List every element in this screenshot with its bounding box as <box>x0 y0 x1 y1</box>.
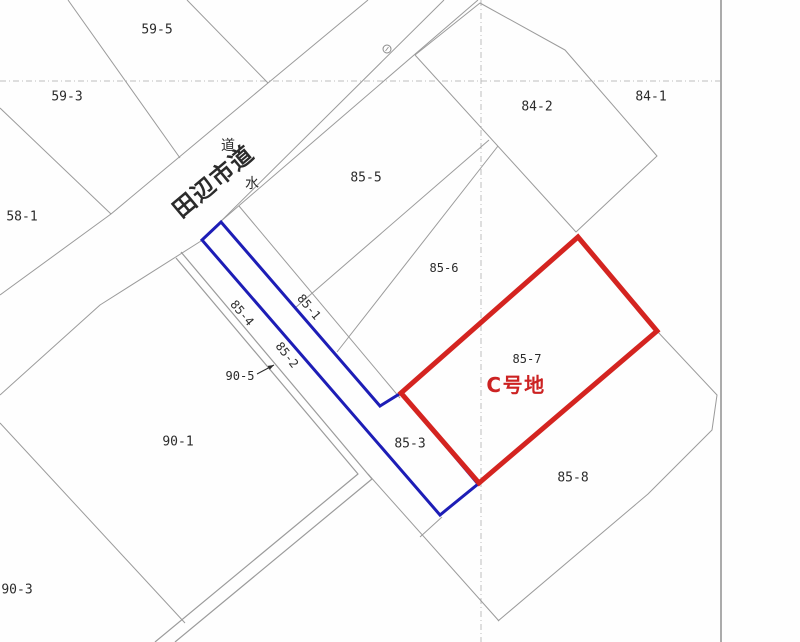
road-southeast-edge <box>0 0 444 395</box>
connector-85-3-tip <box>420 517 442 537</box>
parcel-label-84-2: 84-2 <box>521 100 552 115</box>
boundary-59-5-east <box>187 0 268 83</box>
lot-c-label: C号地 <box>486 373 545 397</box>
parcel-label-85-3: 85-3 <box>394 437 425 452</box>
channel-90-5-outer <box>175 252 372 642</box>
water-strip-label: 水 <box>245 176 259 192</box>
parcel-label-58-1: 58-1 <box>6 210 37 225</box>
parcel-label-85-5: 85-5 <box>350 171 381 186</box>
parcel-label-85-1: 85-1 <box>294 291 323 322</box>
parcel-84-2-outline <box>415 3 657 232</box>
label-90-5-arrowhead <box>268 365 274 370</box>
parcel-label-90-3: 90-3 <box>1 583 32 598</box>
parcel-label-85-7: 85-7 <box>513 352 542 366</box>
boundary-85-8-northwest <box>368 474 499 621</box>
parcel-label-85-6: 85-6 <box>430 261 459 275</box>
parcel-label-90-5: 90-5 <box>226 369 255 383</box>
cadastral-map-page: 59-559-358-184-284-185-585-685-785-885-3… <box>0 0 800 642</box>
cadastral-map-svg: 59-559-358-184-284-185-585-685-785-885-3… <box>0 0 800 642</box>
road-northwest-edge <box>0 0 368 295</box>
parcel-label-59-5: 59-5 <box>141 23 172 38</box>
parcel-label-90-1: 90-1 <box>162 435 193 450</box>
boundary-59-3-southwest <box>0 108 111 214</box>
parcel-label-84-1: 84-1 <box>635 90 666 105</box>
survey-point-tick <box>386 47 389 51</box>
boundary-85-5-85-6 <box>295 140 489 308</box>
parcel-label-59-3: 59-3 <box>51 90 82 105</box>
parcel-label-85-8: 85-8 <box>557 471 588 486</box>
channel-90-5-inner <box>155 258 358 642</box>
